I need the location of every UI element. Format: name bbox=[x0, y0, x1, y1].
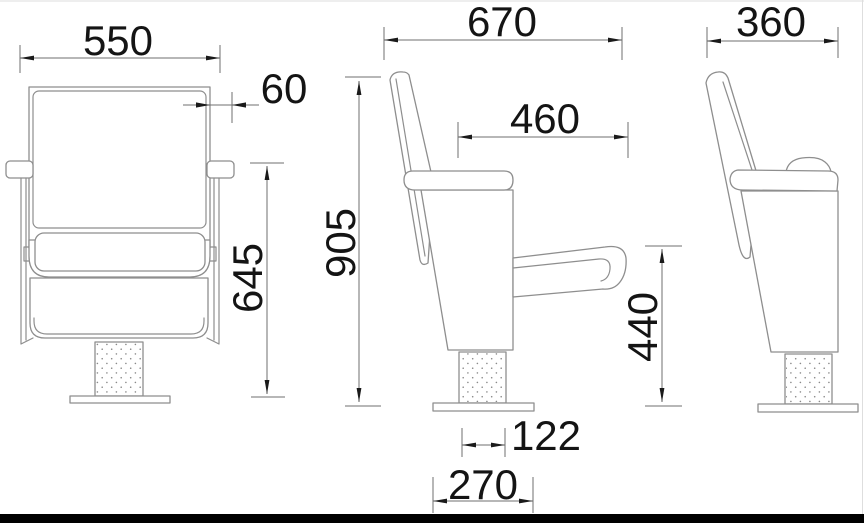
dim-440: 440 bbox=[619, 246, 682, 406]
dim-label-360: 360 bbox=[736, 0, 806, 45]
back-armrest bbox=[730, 170, 838, 191]
dim-label-270: 270 bbox=[448, 461, 518, 508]
dim-label-460: 460 bbox=[510, 95, 580, 142]
side-pedestal-texture bbox=[460, 353, 505, 402]
dim-label-905: 905 bbox=[317, 208, 364, 278]
bottom-border-bar bbox=[0, 514, 864, 523]
dim-550: 550 bbox=[20, 17, 220, 73]
back-pedestal-texture bbox=[786, 355, 831, 403]
front-lower-panel bbox=[30, 278, 208, 338]
side-view: 670 460 905 440 122 270 bbox=[317, 0, 682, 513]
side-backrest bbox=[390, 72, 433, 265]
back-base-plate bbox=[758, 404, 858, 412]
back-body-panel bbox=[741, 191, 838, 352]
dim-270: 270 bbox=[433, 461, 533, 513]
dim-905: 905 bbox=[317, 77, 381, 406]
front-base-plate bbox=[70, 396, 170, 403]
side-armrest bbox=[404, 171, 513, 190]
dim-460: 460 bbox=[458, 95, 628, 158]
dim-670: 670 bbox=[384, 0, 622, 60]
front-view: 550 60 645 bbox=[6, 17, 307, 403]
dim-label-550: 550 bbox=[83, 17, 153, 64]
dim-label-645: 645 bbox=[224, 243, 271, 313]
side-body-panel bbox=[421, 190, 513, 350]
chair-dimension-drawing: 550 60 645 670 bbox=[0, 0, 864, 523]
front-armrest-left bbox=[6, 161, 33, 178]
front-pedestal-texture bbox=[96, 343, 142, 395]
dim-label-440: 440 bbox=[619, 292, 666, 362]
front-backrest bbox=[29, 87, 210, 248]
dim-label-60: 60 bbox=[261, 65, 308, 112]
dim-645: 645 bbox=[224, 163, 285, 397]
front-armrest-right bbox=[207, 161, 234, 178]
front-seat-cushion bbox=[35, 233, 205, 271]
dim-360: 360 bbox=[707, 0, 838, 58]
dim-label-670: 670 bbox=[467, 0, 537, 45]
chair-dimension-drawing-page: 550 60 645 670 bbox=[0, 0, 864, 523]
back-folded-seat-edge bbox=[786, 158, 831, 173]
side-base-plate bbox=[433, 403, 534, 411]
dim-122: 122 bbox=[462, 412, 581, 459]
dim-label-122: 122 bbox=[511, 412, 581, 459]
back-side-view: 360 bbox=[706, 0, 858, 412]
